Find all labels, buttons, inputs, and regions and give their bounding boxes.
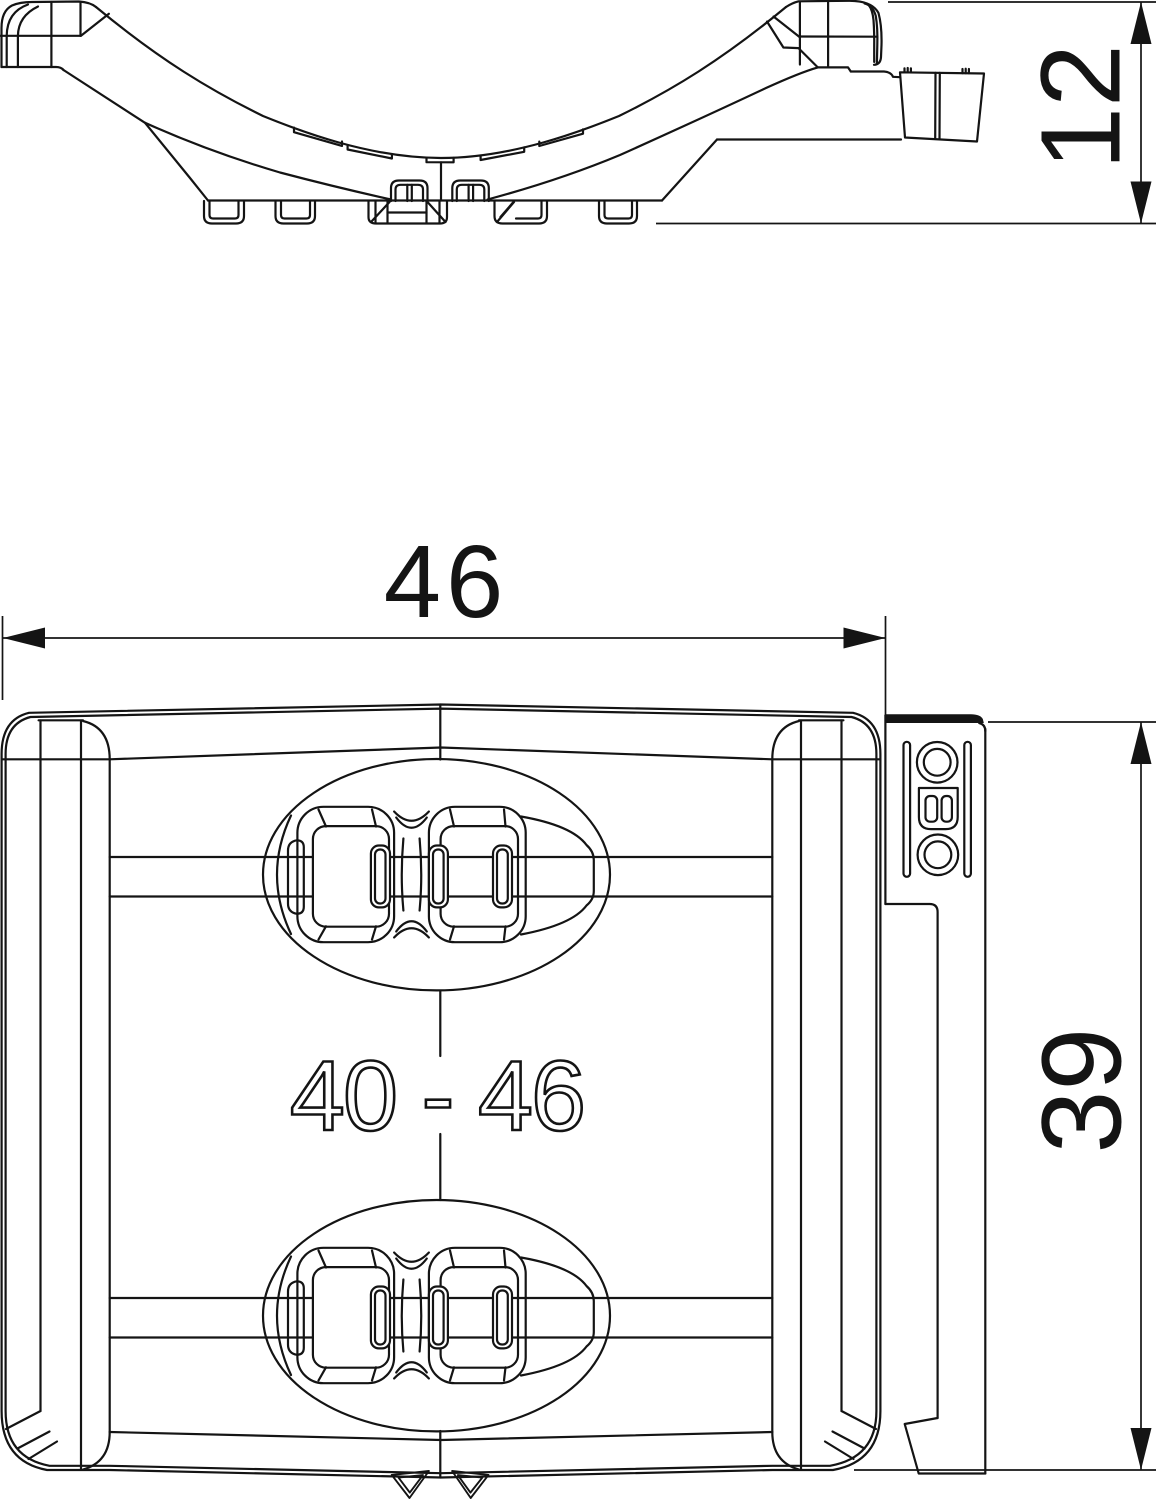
svg-text:46: 46 [384,524,509,639]
svg-text:39: 39 [1019,1028,1145,1154]
svg-text:40 - 46: 40 - 46 [290,1040,584,1151]
svg-text:12: 12 [1018,44,1144,170]
